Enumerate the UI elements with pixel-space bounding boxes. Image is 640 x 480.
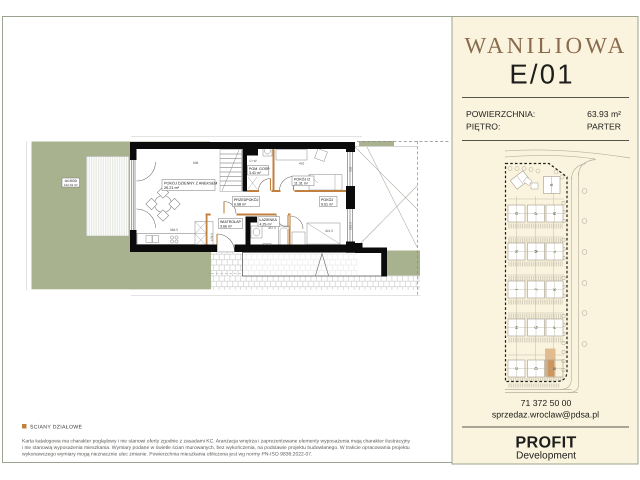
svg-text:POKÓJ DZIENNY Z ANEKSEM: POKÓJ DZIENNY Z ANEKSEM [164, 180, 217, 185]
svg-text:178.5: 178.5 [210, 233, 214, 241]
svg-text:26.21 m²: 26.21 m² [164, 186, 180, 190]
svg-text:C+W: C+W [250, 159, 257, 163]
svg-text:11.31 m²: 11.31 m² [294, 182, 309, 186]
svg-text:321.5: 321.5 [325, 229, 333, 233]
svg-text:PARTER: PARTER [587, 122, 621, 132]
svg-text:D: D [534, 367, 539, 370]
svg-text:112.31 m²: 112.31 m² [64, 183, 78, 187]
svg-text:WANILIOWA: WANILIOWA [465, 33, 628, 58]
svg-text:J: J [534, 288, 539, 290]
svg-text:384.5: 384.5 [170, 228, 178, 232]
svg-text:71 372 50 00: 71 372 50 00 [521, 398, 572, 408]
svg-text:PRZEDPOKÓJ: PRZEDPOKÓJ [234, 197, 259, 202]
svg-text:wykonawczego wymiary mogą niez: wykonawczego wymiary mogą nieznacznie ul… [22, 452, 312, 458]
svg-text:PIĘTRO:: PIĘTRO: [466, 122, 500, 132]
svg-text:9.01 m²: 9.01 m² [321, 202, 334, 206]
svg-text:E: E [552, 367, 557, 370]
svg-text:263.5: 263.5 [349, 222, 353, 230]
svg-text:G: G [534, 326, 539, 329]
svg-text:ŚCIANY DZIAŁOWE: ŚCIANY DZIAŁOWE [30, 424, 82, 431]
svg-text:6.08 m²: 6.08 m² [234, 202, 247, 206]
svg-text:Karta katalogowa ma charakter: Karta katalogowa ma charakter poglądowy … [22, 439, 410, 445]
svg-text:S: S [549, 183, 554, 186]
svg-text:POKÓJ: POKÓJ [321, 197, 333, 202]
svg-text:P: P [534, 212, 539, 215]
svg-text:PROFIT: PROFIT [515, 434, 576, 452]
svg-text:E/01: E/01 [509, 59, 574, 90]
svg-text:M: M [534, 249, 539, 253]
svg-text:3.41 m²: 3.41 m² [249, 171, 262, 175]
svg-text:sprzedaz.wroclaw@pdsa.pl: sprzedaz.wroclaw@pdsa.pl [492, 410, 599, 420]
svg-text:N: N [514, 250, 519, 253]
svg-text:I: I [514, 289, 519, 290]
svg-text:491: 491 [299, 162, 305, 166]
svg-text:302: 302 [349, 166, 353, 172]
svg-text:C: C [514, 367, 519, 370]
svg-text:POWIERZCHNIA:: POWIERZCHNIA: [466, 109, 535, 119]
svg-text:i nie stanowią wyposażenia mie: i nie stanowią wyposażenia mieszkania. W… [22, 445, 410, 451]
svg-text:K: K [552, 288, 557, 291]
svg-text:H: H [514, 326, 519, 329]
svg-text:F: F [552, 326, 557, 329]
svg-text:63.93 m²: 63.93 m² [587, 109, 621, 119]
svg-text:357.5: 357.5 [268, 226, 276, 230]
svg-text:898: 898 [193, 161, 199, 165]
svg-text:R: R [552, 212, 557, 215]
svg-text:3.66 m²: 3.66 m² [220, 224, 233, 228]
svg-text:Development: Development [516, 451, 576, 462]
